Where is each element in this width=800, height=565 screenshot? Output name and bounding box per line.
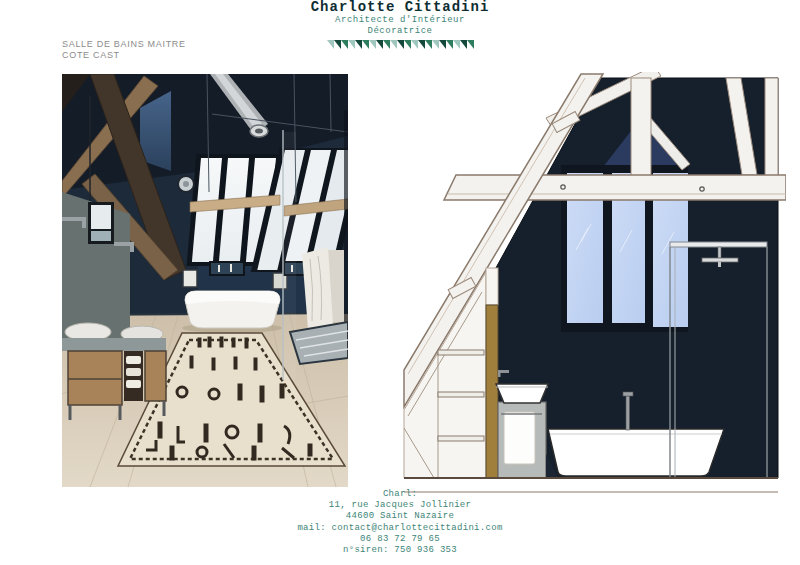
footer-address-street: 11, rue Jacques Jollinier — [0, 500, 800, 511]
banner-triangle — [397, 40, 404, 49]
banner-triangle — [404, 40, 411, 49]
banner-triangle — [362, 40, 369, 49]
bathtub — [182, 291, 282, 333]
banner-triangle — [341, 40, 348, 49]
footer-email: mail: contact@charlottecittadini.com — [0, 523, 800, 534]
project-label-line2: COTE CAST — [62, 50, 186, 61]
banner-triangle — [411, 40, 418, 49]
tub-faucet — [626, 396, 630, 430]
tie-beam — [444, 175, 786, 200]
banner-triangle — [467, 40, 474, 49]
king-post — [631, 78, 651, 178]
banner-triangle — [369, 40, 376, 49]
corner-post — [765, 78, 778, 178]
banner-triangle — [327, 40, 334, 49]
project-label-line1: SALLE DE BAINS MAITRE — [62, 39, 186, 50]
banner-triangle — [376, 40, 383, 49]
footer-siren: n°siren: 750 936 353 — [0, 545, 800, 556]
bathroom-photo-svg — [62, 74, 348, 487]
banner-triangle — [460, 40, 467, 49]
page-title: Charlotte Cittadini — [0, 0, 800, 15]
towel — [504, 412, 535, 464]
banner-triangle — [348, 40, 355, 49]
banner-triangle — [432, 40, 439, 49]
footer-address-city: 44600 Saint Nazaire — [0, 511, 800, 522]
banner-triangle — [453, 40, 460, 49]
portfolio-page: Charlotte Cittadini Architecte d'Intérie… — [0, 0, 800, 565]
footer-line-1: Charl: — [0, 489, 800, 500]
banner-triangle — [355, 40, 362, 49]
banner-triangle — [425, 40, 432, 49]
banner-triangle — [390, 40, 397, 49]
banner-triangle — [439, 40, 446, 49]
banner-triangle — [418, 40, 425, 49]
small-window — [88, 202, 114, 244]
bathroom-photo — [62, 74, 348, 487]
banner-triangle — [334, 40, 341, 49]
banner-triangle — [446, 40, 453, 49]
banner-triangle — [383, 40, 390, 49]
subtitle-role: Décoratrice — [0, 26, 800, 37]
footer-contact: Charl: 11, rue Jacques Jollinier 44600 S… — [0, 489, 800, 556]
bathroom-elevation-drawing — [398, 72, 786, 495]
washstand — [496, 384, 548, 478]
hanging-towels — [302, 247, 344, 329]
footer-phone: 06 83 72 79 65 — [0, 534, 800, 545]
project-label: SALLE DE BAINS MAITRE COTE CAST — [62, 39, 186, 61]
elevation-drawing-svg — [398, 72, 786, 495]
door — [486, 305, 498, 478]
subtitle-profession: Architecte d'Intérieur — [0, 15, 800, 26]
